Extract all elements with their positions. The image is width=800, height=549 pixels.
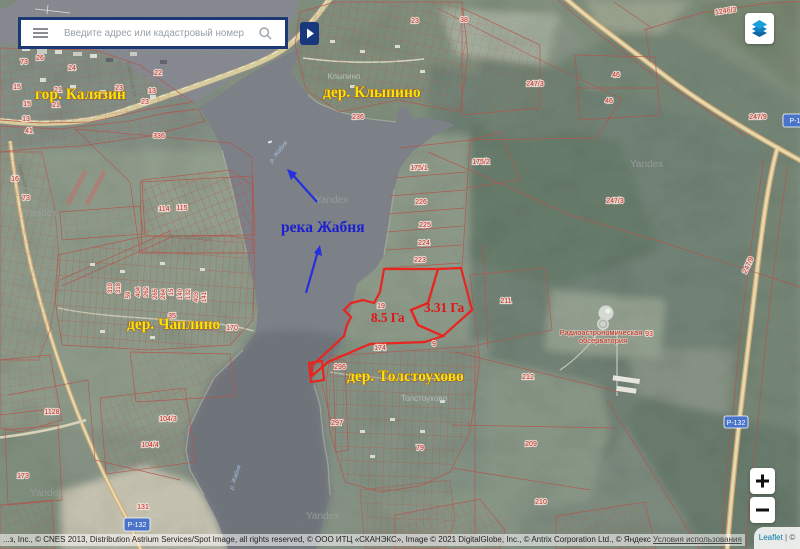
svg-text:13: 13 [22, 116, 30, 123]
svg-text:15: 15 [13, 84, 21, 91]
svg-text:225: 225 [419, 222, 431, 229]
svg-text:247/3: 247/3 [606, 198, 624, 205]
svg-text:Yandex: Yandex [30, 488, 63, 499]
svg-text:170: 170 [226, 325, 238, 332]
svg-text:16: 16 [11, 176, 19, 183]
svg-text:209: 209 [525, 441, 537, 448]
svg-text:Р-1: Р-1 [790, 118, 800, 125]
svg-text:3.31 Га: 3.31 Га [424, 300, 465, 315]
svg-text:59: 59 [126, 291, 132, 298]
svg-text:247/3: 247/3 [526, 81, 544, 88]
svg-text:дер. Толстоухово: дер. Толстоухово [347, 368, 464, 385]
svg-text:79: 79 [416, 445, 424, 452]
svg-text:131: 131 [137, 504, 149, 511]
svg-text:93: 93 [645, 331, 653, 338]
svg-text:8.5 Га: 8.5 Га [371, 310, 405, 325]
svg-text:141: 141 [202, 291, 208, 302]
svg-text:обсерватория: обсерватория [579, 336, 627, 345]
svg-text:Yandex: Yandex [306, 511, 339, 522]
svg-text:173: 173 [17, 473, 29, 480]
svg-text:132: 132 [186, 288, 192, 299]
svg-text:297: 297 [331, 420, 343, 427]
svg-text:319: 319 [108, 282, 114, 293]
svg-text:175/1: 175/1 [410, 165, 428, 172]
svg-text:226: 226 [415, 199, 427, 206]
svg-text:114: 114 [158, 206, 169, 213]
svg-text:336: 336 [153, 133, 165, 140]
svg-text:23: 23 [411, 18, 419, 25]
svg-text:140: 140 [178, 288, 184, 299]
svg-text:211: 211 [500, 298, 511, 305]
svg-text:73: 73 [20, 59, 28, 66]
svg-text:Р-132: Р-132 [128, 522, 147, 529]
svg-text:23: 23 [141, 99, 149, 106]
svg-text:296: 296 [334, 364, 346, 371]
svg-text:41: 41 [25, 128, 33, 135]
svg-text:236: 236 [352, 114, 364, 121]
svg-text:46: 46 [612, 72, 620, 79]
svg-text:46: 46 [605, 98, 613, 105]
svg-text:21: 21 [52, 102, 60, 109]
svg-text:15: 15 [23, 101, 31, 108]
svg-text:1128: 1128 [44, 409, 59, 416]
svg-text:115: 115 [176, 205, 187, 212]
svg-text:403: 403 [194, 291, 200, 302]
svg-text:Yandex: Yandex [315, 195, 348, 206]
svg-text:265: 265 [153, 288, 159, 299]
svg-text:22: 22 [154, 70, 162, 77]
svg-text:19: 19 [377, 303, 385, 310]
svg-text:река Жабня: река Жабня [281, 219, 365, 236]
svg-text:212: 212 [522, 374, 534, 381]
svg-text:Yandex: Yandex [630, 159, 663, 170]
svg-text:26: 26 [36, 55, 44, 62]
svg-text:262: 262 [144, 286, 150, 297]
svg-text:175/2: 175/2 [472, 159, 490, 166]
svg-text:104/4: 104/4 [141, 442, 159, 449]
svg-text:24: 24 [68, 65, 76, 72]
svg-text:Толстоухово: Толстоухово [401, 394, 448, 403]
svg-text:247/9: 247/9 [749, 114, 767, 121]
svg-text:210: 210 [535, 499, 547, 506]
svg-text:224: 224 [418, 240, 430, 247]
svg-text:Yandex: Yandex [24, 208, 57, 219]
svg-text:Клыпино: Клыпино [328, 72, 361, 81]
svg-text:104/3: 104/3 [159, 416, 177, 423]
svg-text:дер. Клыпино: дер. Клыпино [323, 84, 421, 101]
svg-text:174: 174 [374, 345, 386, 352]
svg-text:223: 223 [414, 257, 426, 264]
svg-text:38: 38 [460, 17, 468, 24]
svg-text:404: 404 [136, 286, 142, 297]
svg-text:15: 15 [169, 288, 175, 295]
svg-text:гор. Калязин: гор. Калязин [35, 86, 126, 103]
svg-text:318: 318 [116, 282, 122, 293]
svg-text:264: 264 [161, 288, 167, 299]
svg-text:13: 13 [148, 88, 156, 95]
svg-text:9: 9 [432, 341, 436, 348]
svg-text:Р-132: Р-132 [727, 420, 746, 427]
svg-text:дер. Чаплино: дер. Чаплино [127, 316, 220, 333]
